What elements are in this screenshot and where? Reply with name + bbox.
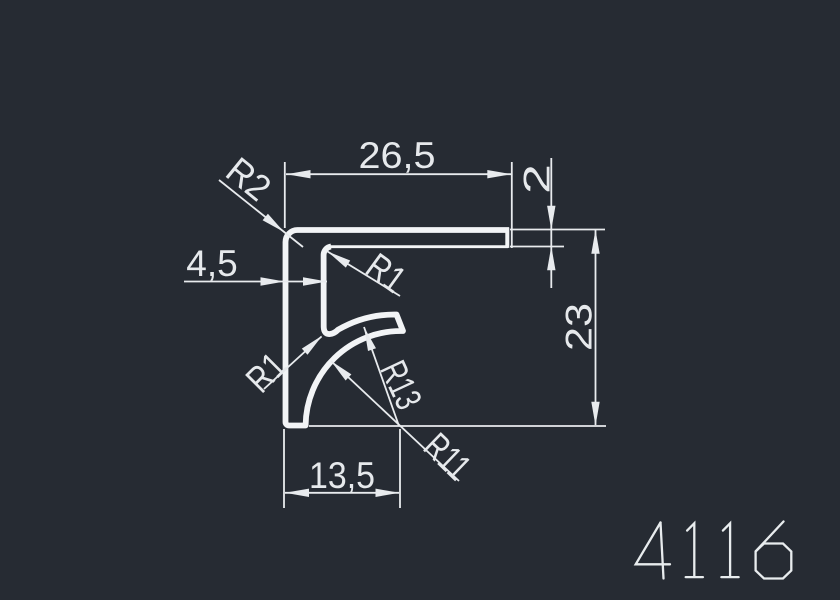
svg-text:13,5: 13,5: [309, 455, 375, 496]
svg-text:2: 2: [517, 164, 558, 194]
svg-text:26,5: 26,5: [359, 135, 436, 176]
svg-text:23: 23: [559, 303, 600, 351]
svg-text:4,5: 4,5: [186, 243, 237, 284]
